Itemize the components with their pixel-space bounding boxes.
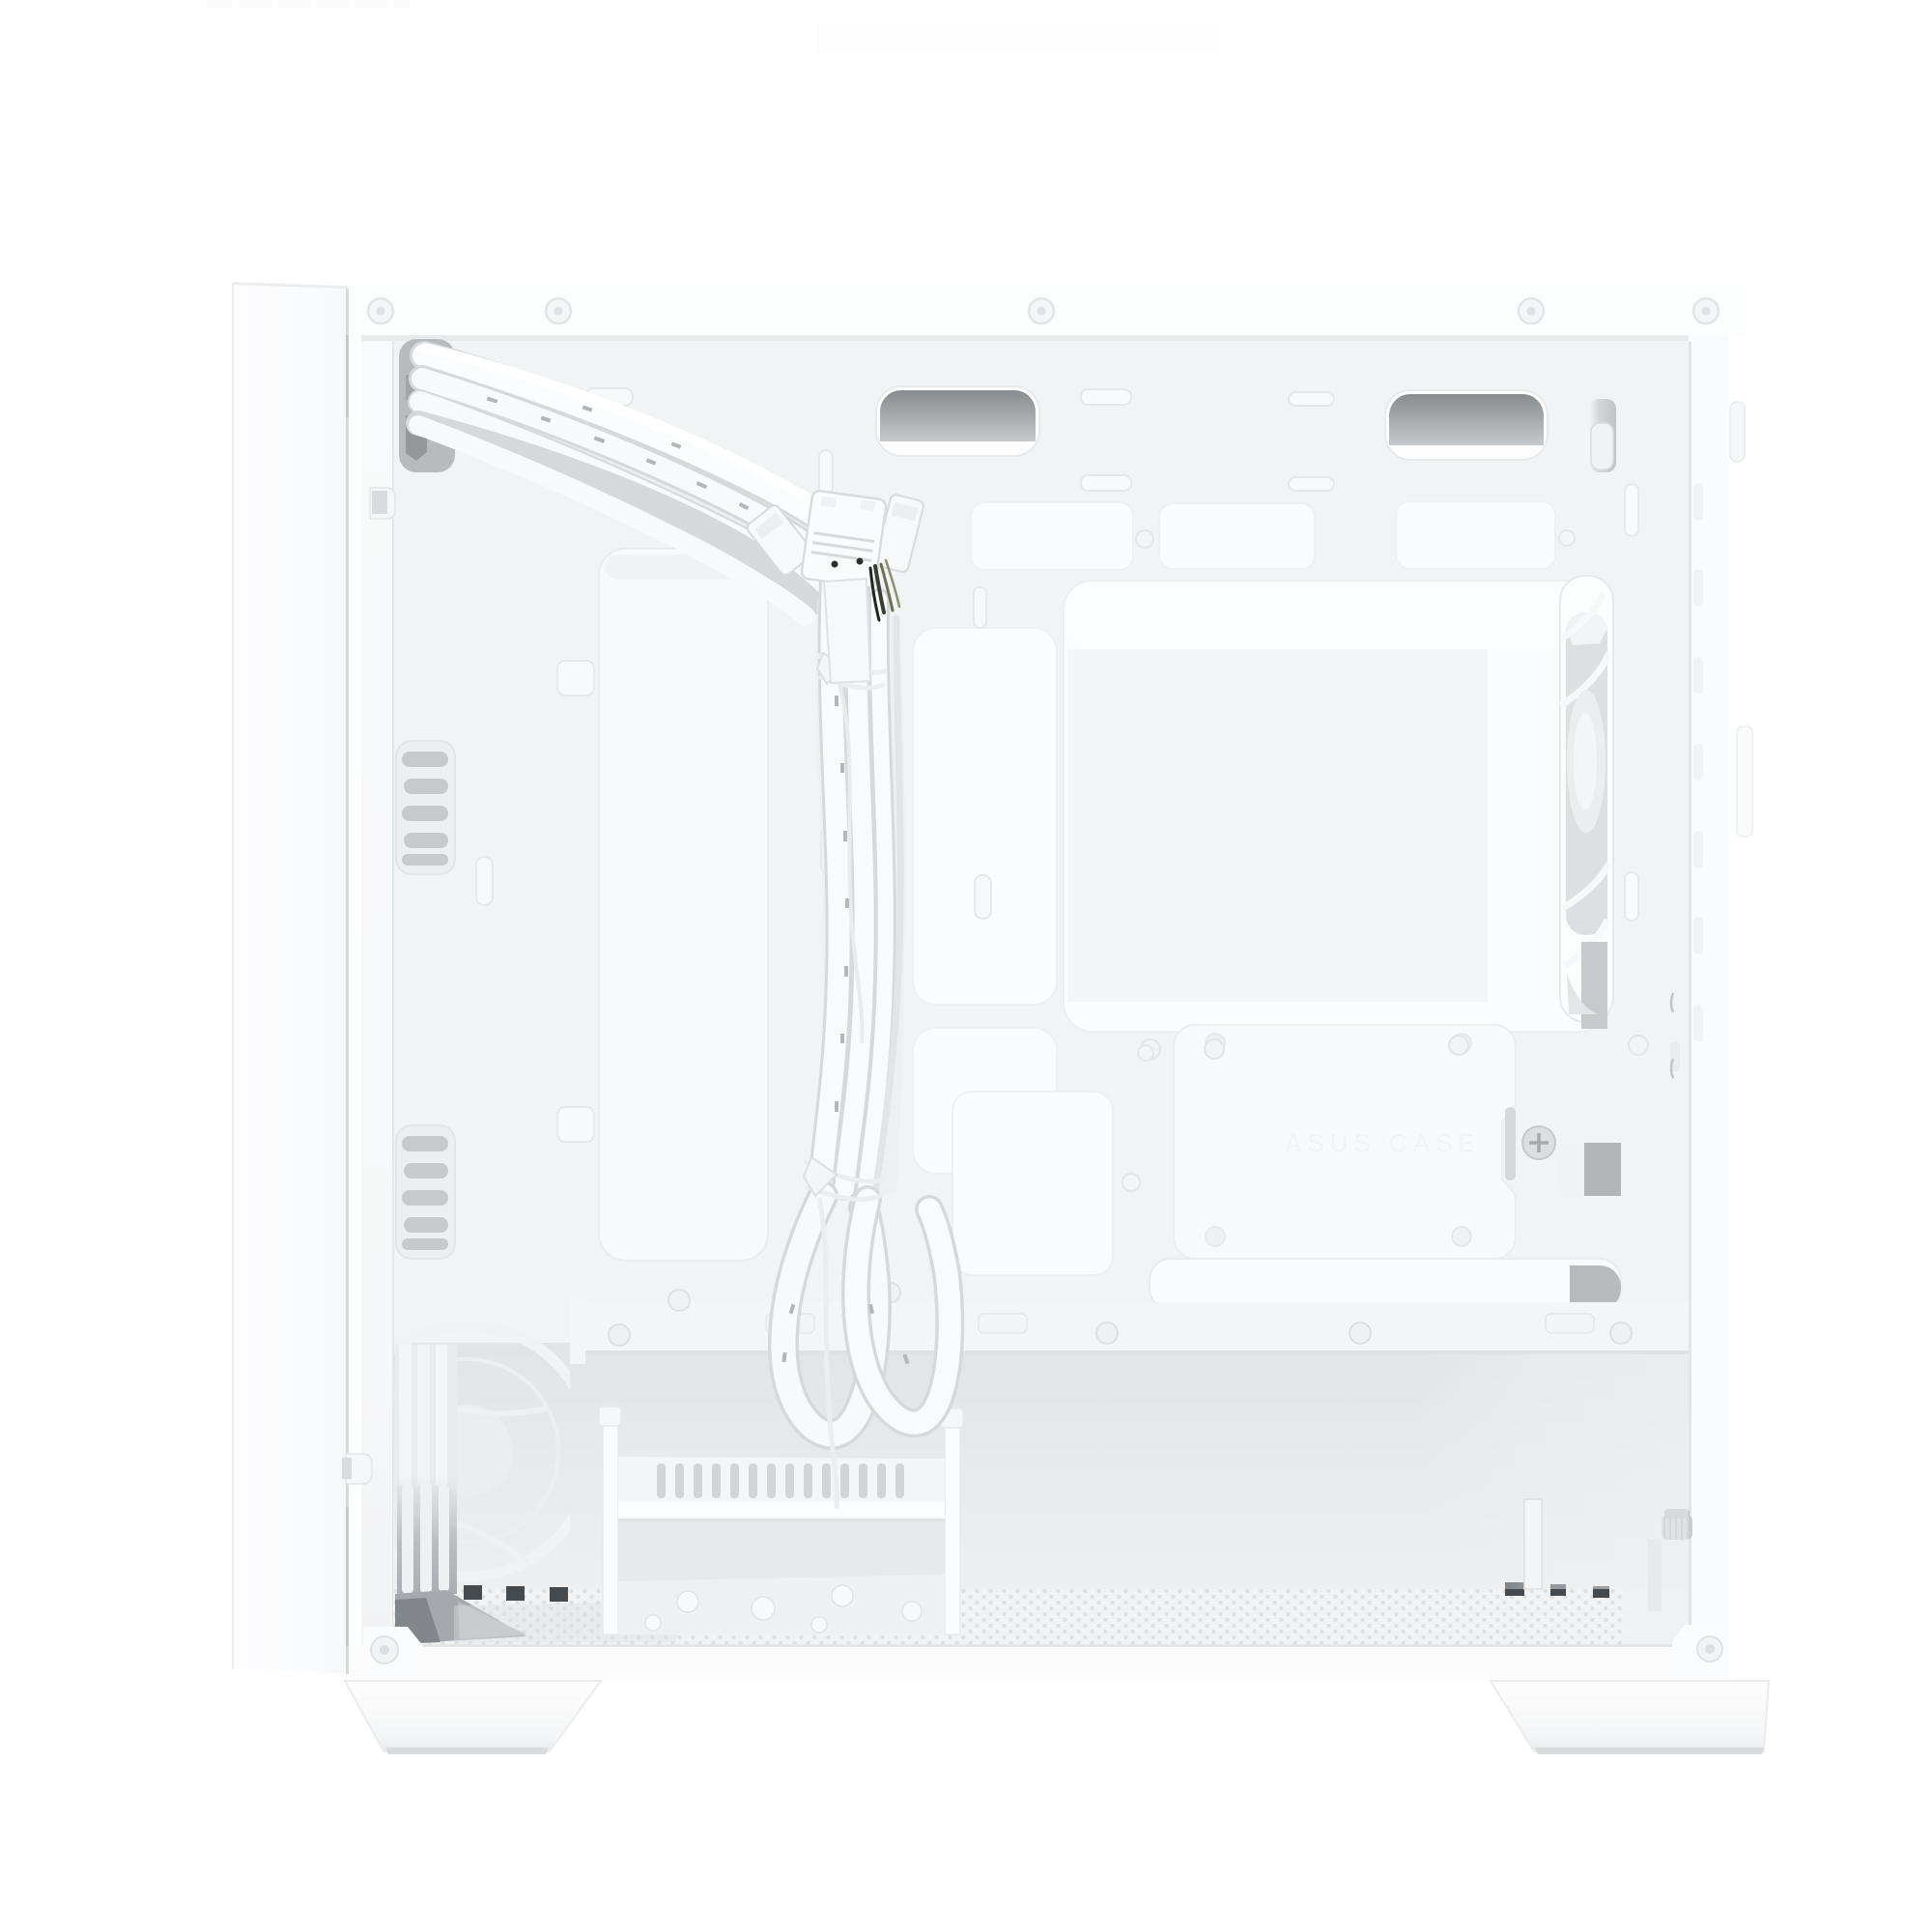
svg-text:ASUS CASE: ASUS CASE <box>1285 1128 1481 1157</box>
